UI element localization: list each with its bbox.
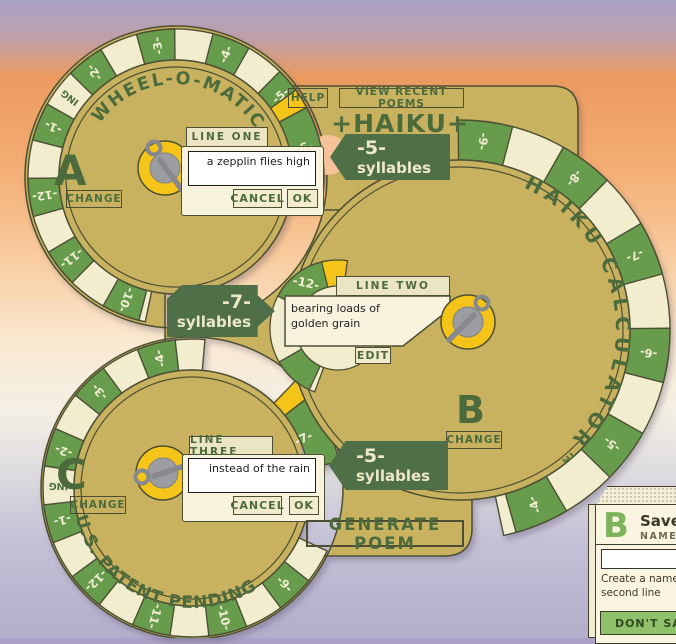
syllable-label: syllables (356, 467, 448, 485)
line-three-ok-button[interactable]: OK (289, 496, 319, 515)
line-three-input[interactable]: instead of the rain (188, 458, 316, 493)
line-one-ok-button[interactable]: OK (287, 189, 318, 208)
wheel-b-hub[interactable] (441, 295, 495, 349)
syllable-badge-line-three: -5- syllables (329, 441, 448, 490)
dialog-helper-line2: second line (601, 586, 676, 600)
wheel-b-number: -6- (639, 345, 658, 361)
wheel-c-letter: C (56, 450, 87, 499)
line-two-edit-button[interactable]: EDIT (355, 347, 391, 364)
line-one-tab: LINE ONE (186, 127, 268, 147)
wheel-b-letter: B (456, 388, 485, 432)
generate-poem-button[interactable]: GENERATE POEM (306, 520, 464, 547)
wheel-a-change-button[interactable]: CHANGE (66, 190, 122, 208)
syllable-count: -5- (357, 138, 450, 159)
dialog-wheel-letter: B (603, 506, 629, 546)
wheel-a-letter: A (54, 146, 87, 195)
wheel-b-number: -9- (475, 132, 491, 151)
line-two-text: bearing loads of golden grain (291, 301, 409, 331)
wheel-a-number: -3- (149, 36, 165, 56)
dialog-title: Save (640, 512, 676, 530)
wheel-c-change-button[interactable]: CHANGE (70, 496, 126, 514)
syllable-label: syllables (357, 159, 450, 177)
syllable-count: -5- (356, 446, 448, 467)
dialog-helper-line1: Create a name for (601, 572, 676, 586)
syllable-badge-line-one: -5- syllables (330, 134, 450, 180)
line-three-tab: LINE THREE (189, 436, 273, 455)
line-three-cancel-button[interactable]: CANCEL (233, 496, 282, 515)
dialog-helper-text: Create a name for second line (601, 572, 676, 600)
help-button[interactable]: HELP (288, 88, 328, 108)
syllable-label: syllables (167, 313, 251, 331)
syllable-count: -7- (167, 292, 251, 313)
dont-save-button[interactable]: DON'T SAVE (600, 611, 676, 635)
line-two-tab: LINE TWO (336, 276, 450, 296)
wheel-b-change-button[interactable]: CHANGE (446, 431, 502, 449)
dialog-header: B Save NAME (596, 505, 676, 545)
dialog-front: B Save NAME Create a name for second lin… (595, 504, 676, 644)
view-recent-poems-button[interactable]: VIEW RECENT POEMS (339, 88, 464, 108)
line-one-input[interactable]: a zepplin flies high (188, 151, 316, 186)
dialog-name-label: NAME (640, 531, 676, 542)
app-title: +HAIKU+ (330, 109, 470, 138)
line-one-cancel-button[interactable]: CANCEL (233, 189, 282, 208)
dialog-name-input[interactable] (601, 549, 676, 569)
dialog-lid (596, 486, 676, 505)
